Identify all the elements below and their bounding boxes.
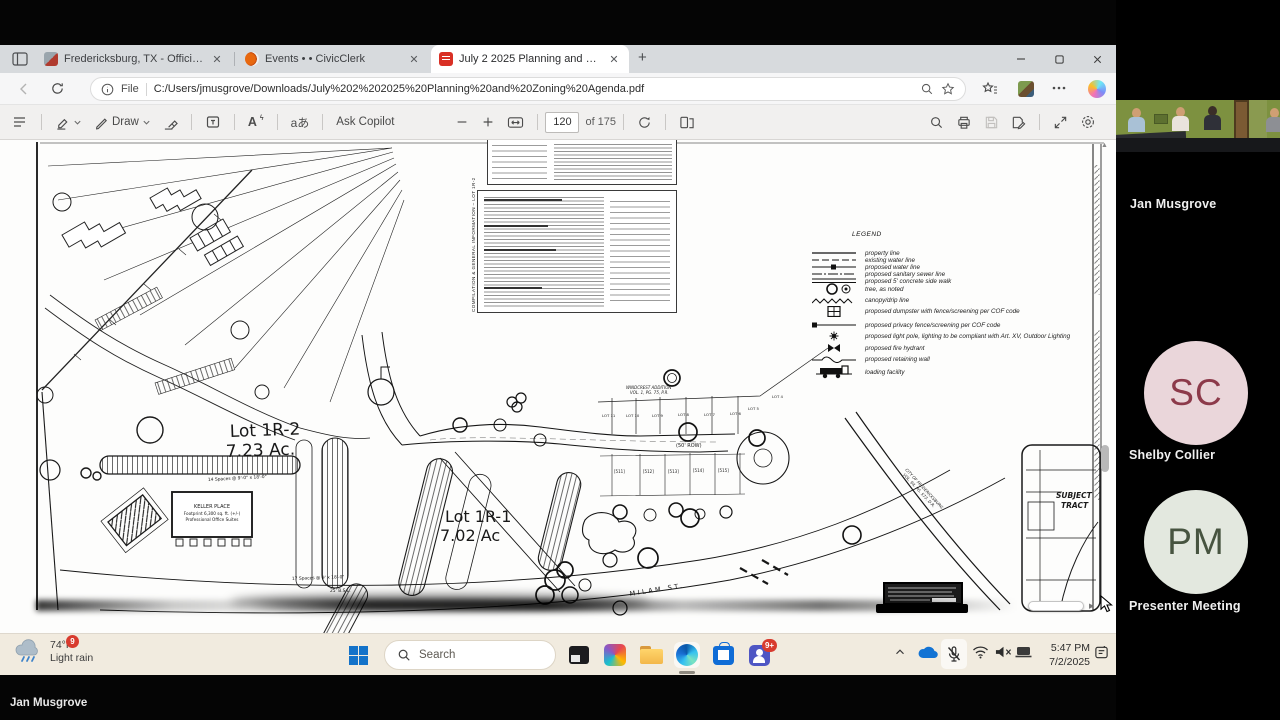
browser-tab-strip: Fredericksburg, TX - Official Web… ✕ Eve… [0, 45, 1116, 73]
m365-copilot-app[interactable] [602, 642, 628, 668]
window-maximize-button[interactable] [1040, 45, 1078, 73]
proposed-trees [453, 370, 861, 615]
tray-date: 7/2/2025 [1032, 655, 1090, 669]
wall-picture [1154, 114, 1168, 124]
addr-515: [515] [718, 468, 729, 473]
text-tool[interactable] [205, 114, 221, 130]
lot-8: LOT 8 [678, 412, 689, 417]
tab-title: Events • • CivicClerk [265, 53, 401, 65]
civicclerk-favicon [245, 52, 259, 66]
weather-widget[interactable]: 74°F Light rain [14, 639, 93, 665]
weather-alert-badge: 9 [66, 635, 79, 648]
lot-1r1-label: Lot 1R-1 [445, 507, 511, 526]
copilot-icon[interactable] [1088, 80, 1106, 98]
wifi-icon[interactable] [972, 645, 989, 659]
loading-facility-symbol [812, 365, 856, 379]
building-use: Professional Office Suites [186, 517, 239, 522]
file-explorer-app[interactable] [638, 642, 664, 668]
window-minimize-button[interactable] [1002, 45, 1040, 73]
start-button[interactable] [345, 642, 371, 668]
tab-separator [234, 52, 235, 66]
privacy-fence-symbol [812, 322, 856, 328]
new-tab-button[interactable]: + [638, 49, 647, 66]
mouse-cursor [1098, 595, 1114, 613]
settings-gear-icon[interactable] [1080, 114, 1096, 130]
browser-address-bar: File C:/Users/jmusgrove/Downloads/July%2… [0, 73, 1116, 105]
lot-10: LOT 10 [626, 413, 640, 418]
city-ref-1: CITY OF FREDERICKSBURG [904, 467, 944, 510]
page-total-label: of 175 [585, 116, 616, 128]
weather-desc: Light rain [50, 652, 93, 665]
fire-hydrant-symbol [812, 343, 856, 353]
pdf-search-icon[interactable] [929, 115, 944, 130]
highlight-tool[interactable] [55, 115, 82, 130]
subject-tract-inset [1022, 445, 1100, 611]
fullscreen-icon[interactable] [1053, 115, 1068, 130]
device-icon[interactable] [1015, 645, 1032, 659]
favorite-star-icon[interactable] [941, 82, 955, 96]
shared-screen: Fredericksburg, TX - Official Web… ✕ Eve… [0, 45, 1116, 675]
lot-11: LOT 11 [602, 413, 616, 418]
tab-close-icon[interactable]: ✕ [407, 53, 421, 66]
subject-tract-2: TRACT [1061, 501, 1089, 510]
participants-panel: Jan Musgrove SC Shelby Collier PM Presen… [1116, 0, 1280, 720]
volume-muted-icon[interactable] [995, 645, 1012, 659]
pdf-toolbar: Draw Aϟ aあ Ask Copilot [0, 105, 1116, 140]
addr-513: [513] [668, 469, 679, 474]
lot-7: LOT 7 [704, 412, 715, 417]
pdf-favicon [439, 52, 453, 66]
tray-chevron-icon[interactable] [893, 645, 907, 659]
lot-9: LOT 9 [652, 413, 663, 418]
plan-labels: Lot 1R-2 7.23 Ac. Lot 1R-1 7.02 Ac KELLE… [184, 385, 1093, 598]
edge-browser-app[interactable] [674, 642, 700, 668]
conference-desk [1116, 138, 1280, 152]
print-icon[interactable] [956, 115, 972, 130]
active-speaker-label: Jan Musgrove [10, 697, 87, 709]
url-scheme-label: File [121, 83, 139, 95]
back-icon[interactable] [16, 81, 32, 97]
participant-name: Presenter Meeting [1129, 599, 1241, 613]
read-aloud-tool[interactable]: Aϟ [248, 115, 264, 129]
page-view-button[interactable] [679, 115, 695, 130]
addr-514: [514] [693, 468, 704, 473]
legend-title: LEGEND [852, 231, 882, 238]
refresh-icon[interactable] [50, 81, 65, 96]
dumpster-symbol [812, 306, 856, 317]
tray-time: 5:47 PM [1032, 641, 1090, 655]
jan-musgrove-video-tile[interactable] [1116, 100, 1280, 152]
tree-symbol [812, 283, 856, 295]
retaining-wall-symbol [812, 355, 856, 363]
existing-subdivision-linework [42, 148, 404, 440]
search-icon[interactable] [920, 82, 934, 96]
pdf-contents-icon[interactable] [12, 114, 28, 130]
general-notes-block [487, 140, 677, 185]
save-as-icon[interactable] [1011, 115, 1026, 130]
meeting-attendee [1172, 107, 1189, 131]
onedrive-icon[interactable] [918, 645, 938, 659]
rotate-button[interactable] [637, 115, 652, 130]
microphone-muted-indicator[interactable] [941, 639, 967, 669]
lot-6: LOT 6 [730, 411, 741, 416]
meeting-video-frame: Fredericksburg, TX - Official Web… ✕ Eve… [0, 0, 1280, 720]
tab-title: July 2 2025 Planning and Zoning [459, 53, 601, 65]
scrollbar-up-arrow[interactable]: ▲ [1101, 142, 1108, 149]
search-placeholder: Search [419, 649, 455, 661]
building-name: KELLER PLACE [194, 504, 230, 510]
compilation-side-label: COMPILATION & GENERAL INFORMATION – LOT … [471, 177, 476, 312]
tab-workspaces-icon[interactable] [10, 50, 30, 68]
lot-1r2-area: 7.23 Ac. [225, 440, 295, 462]
windows-taskbar: 74°F Light rain 9 Search 9+ [0, 633, 1116, 675]
meeting-attendee [1266, 108, 1280, 132]
collections-icon[interactable] [982, 81, 998, 97]
plan-legend: LEGEND property line existing water line… [812, 230, 1112, 390]
light-pole-symbol [812, 331, 856, 341]
weather-icon [14, 639, 42, 665]
tab-civicclerk[interactable]: Events • • CivicClerk ✕ [237, 45, 429, 73]
tab-pdf-agenda[interactable]: July 2 2025 Planning and Zoning ✕ [431, 45, 629, 73]
tab-title: Fredericksburg, TX - Official Web… [64, 53, 204, 65]
subject-tract-1: SUBJECT [1056, 491, 1093, 500]
lot-1r1-area: 7.02 Ac [440, 526, 500, 545]
fredericksburg-favicon [44, 52, 58, 66]
save-icon[interactable] [984, 115, 999, 130]
windcrest-lots [598, 348, 828, 496]
active-app-indicator [679, 671, 695, 674]
pdf-page-site-plan[interactable]: Lot 1R-2 7.23 Ac. Lot 1R-1 7.02 Ac KELLE… [0, 140, 1116, 633]
avatar-presenter-meeting[interactable]: PM [1144, 490, 1248, 594]
addr-512: [512] [643, 469, 654, 474]
sewer-line-symbol [812, 272, 856, 276]
scan-artifact [230, 595, 650, 609]
lot-5: LOT 5 [748, 406, 759, 411]
taskbar-search[interactable]: Search [384, 640, 556, 670]
extension-icon[interactable] [1018, 81, 1034, 97]
city-ref-2: VOL. 94, PG. 573, D.R. [902, 472, 936, 508]
windcrest-vol: VOL. 1, PG. 75, P.R. [630, 390, 669, 395]
vertical-scrollbar-thumb[interactable] [1101, 445, 1109, 472]
horizontal-scrollbar-thumb[interactable] [1028, 601, 1084, 611]
meeting-attendee [1128, 108, 1145, 132]
bsl-label: 25' B.S.L. [330, 588, 351, 594]
tab-fredericksburg[interactable]: Fredericksburg, TX - Official Web… ✕ [36, 45, 232, 73]
zoom-out-button[interactable] [455, 115, 469, 129]
translate-tool[interactable]: aあ [291, 114, 310, 131]
lot-1r2-label: Lot 1R-2 [229, 420, 300, 442]
search-icon [397, 648, 411, 662]
chevron-down-icon [73, 118, 82, 127]
draw-label: Draw [112, 116, 139, 128]
building-footprint: Footprint 6,300 sq. ft. (+/-) [184, 511, 241, 516]
notification-center-icon[interactable] [1094, 645, 1109, 660]
row-label: (50' ROW) [676, 443, 702, 449]
street-label: MILAM ST. [629, 581, 685, 598]
url-field[interactable]: File C:/Users/jmusgrove/Downloads/July%2… [90, 77, 966, 101]
fit-to-width-button[interactable] [507, 115, 524, 130]
zoom-in-button[interactable] [481, 115, 495, 129]
task-view-button[interactable] [566, 642, 592, 668]
meeting-attendee [1204, 106, 1221, 130]
microsoft-store-app[interactable] [710, 642, 736, 668]
participant-name: Jan Musgrove [1130, 197, 1216, 211]
existing-water-symbol [812, 258, 856, 262]
site-data-table [477, 190, 677, 313]
participant-name: Shelby Collier [1129, 448, 1215, 462]
erase-tool[interactable] [163, 115, 178, 130]
more-menu-icon[interactable] [1052, 85, 1066, 91]
tab-close-icon[interactable]: ✕ [210, 53, 224, 66]
tab-close-icon[interactable]: ✕ [607, 53, 621, 66]
chevron-down-icon [142, 118, 151, 127]
property-line-symbol [812, 251, 856, 255]
addr-511: [511] [614, 469, 625, 474]
lot-4: LOT 4 [772, 394, 783, 399]
teams-notification-badge: 9+ [762, 639, 777, 652]
page-number-input[interactable] [545, 112, 579, 133]
ask-copilot-button[interactable]: Ask Copilot [336, 116, 394, 128]
info-icon [101, 83, 114, 96]
scrollbar-right-arrow[interactable]: ▶ [1089, 602, 1094, 610]
draw-tool[interactable]: Draw [94, 115, 151, 130]
window-close-button[interactable] [1078, 45, 1116, 73]
url-text: C:/Users/jmusgrove/Downloads/July%202%20… [154, 83, 913, 95]
spaces-14-label: 14 Spaces @ 9'-0" x 18'-0" [208, 474, 267, 483]
canopy-symbol [812, 297, 856, 304]
clock[interactable]: 5:47 PM 7/2/2025 [1032, 641, 1090, 669]
avatar-shelby-collier[interactable]: SC [1144, 341, 1248, 445]
